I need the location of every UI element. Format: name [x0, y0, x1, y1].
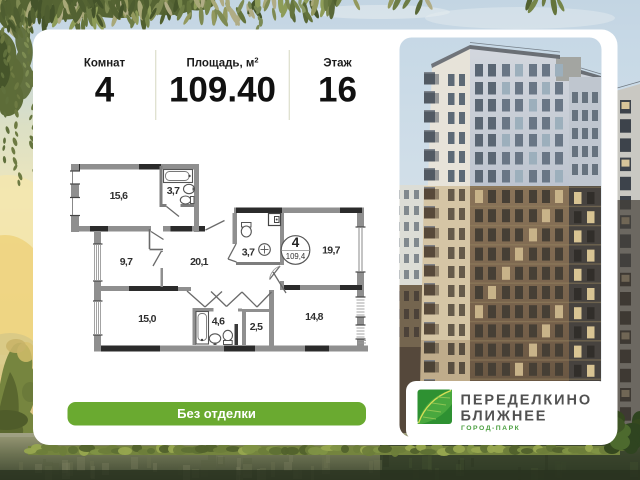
svg-text:9,7: 9,7	[120, 256, 133, 268]
svg-text:19,7: 19,7	[322, 245, 340, 257]
svg-text:4,6: 4,6	[212, 316, 225, 328]
svg-text:20,1: 20,1	[190, 256, 208, 268]
svg-text:Комнат: Комнат	[84, 58, 126, 70]
svg-text:15,6: 15,6	[110, 190, 128, 202]
svg-text:Площадь, м2: Площадь, м2	[186, 56, 258, 70]
svg-text:16: 16	[318, 71, 357, 110]
svg-text:109,4: 109,4	[286, 252, 306, 261]
svg-text:4: 4	[292, 235, 300, 250]
svg-text:Этаж: Этаж	[323, 58, 352, 70]
svg-text:2,5: 2,5	[250, 321, 263, 333]
svg-text:4: 4	[95, 71, 115, 110]
svg-text:ПЕРЕДЕЛКИНО: ПЕРЕДЕЛКИНО	[461, 393, 593, 409]
svg-text:ГОРОД-ПАРК: ГОРОД-ПАРК	[461, 425, 520, 432]
svg-text:Без отделки: Без отделки	[177, 406, 256, 421]
svg-text:3,7: 3,7	[242, 247, 255, 259]
svg-text:14,8: 14,8	[305, 311, 323, 323]
svg-text:3,7: 3,7	[167, 185, 180, 197]
svg-text:БЛИЖНЕЕ: БЛИЖНЕЕ	[461, 409, 548, 425]
svg-text:15,0: 15,0	[138, 313, 156, 325]
svg-text:109.40: 109.40	[169, 71, 276, 110]
